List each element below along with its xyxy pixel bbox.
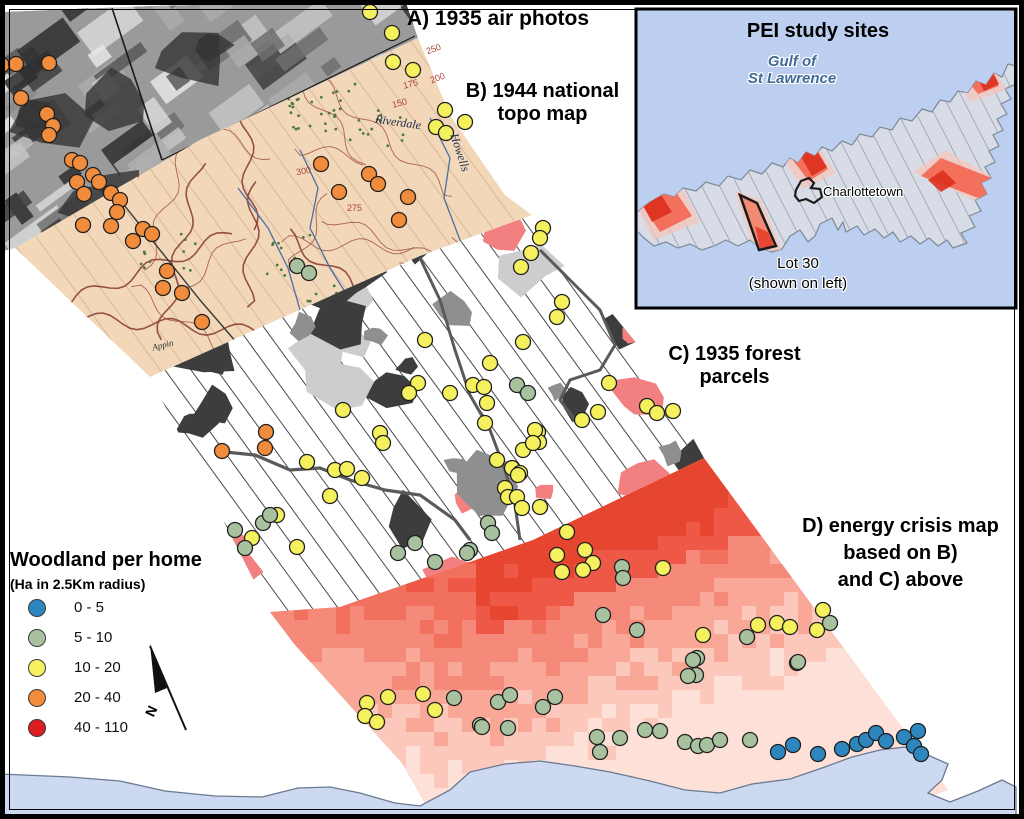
label-energy-line1: D) energy crisis map (778, 513, 1023, 540)
map-dot-5-10 (428, 555, 443, 570)
map-dot-5-10 (681, 669, 696, 684)
map-dot-5-10 (503, 688, 518, 703)
map-dot-20-40 (73, 156, 88, 171)
label-energy-line2: based on B) (778, 540, 1023, 567)
map-dot-10-20 (656, 561, 671, 576)
map-dot-10-20 (336, 403, 351, 418)
map-dot-10-20 (385, 26, 400, 41)
map-dot-20-40 (401, 190, 416, 205)
map-dot-10-20 (526, 436, 541, 451)
legend-item: 20 - 40 (10, 683, 202, 712)
map-dot-0-5 (771, 745, 786, 760)
legend-item-label: 20 - 40 (74, 689, 121, 706)
map-dot-5-10 (596, 608, 611, 623)
map-dot-10-20 (477, 380, 492, 395)
map-dot-20-40 (92, 175, 107, 190)
map-dot-10-20 (560, 525, 575, 540)
map-dot-5-10 (638, 723, 653, 738)
map-dot-5-10 (613, 731, 628, 746)
map-dot-5-10 (630, 623, 645, 638)
legend-item: 40 - 110 (10, 713, 202, 742)
map-dot-5-10 (686, 653, 701, 668)
legend-title: Woodland per home (10, 549, 202, 572)
map-dot-10-20 (386, 55, 401, 70)
map-dot-10-20 (381, 690, 396, 705)
map-dot-10-20 (533, 231, 548, 246)
map-dot-10-20 (783, 620, 798, 635)
legend-item-label: 40 - 110 (74, 719, 128, 736)
map-dot-10-20 (480, 396, 495, 411)
map-dot-5-10 (616, 571, 631, 586)
map-dot-10-20 (300, 455, 315, 470)
legend-item: 0 - 5 (10, 593, 202, 622)
legend-rows: 0 - 55 - 1010 - 2020 - 4040 - 110 (10, 593, 202, 742)
gulf-line2: St Lawrence (732, 70, 852, 87)
map-dot-20-40 (195, 315, 210, 330)
map-dot-10-20 (402, 386, 417, 401)
map-dot-20-40 (371, 177, 386, 192)
map-dot-5-10 (593, 745, 608, 760)
legend-swatch-icon (28, 719, 46, 737)
legend-item: 5 - 10 (10, 623, 202, 652)
gulf-label: Gulf of St Lawrence (732, 53, 852, 88)
map-dot-10-20 (516, 335, 531, 350)
legend-subtitle: (Ha in 2.5Km radius) (10, 576, 202, 592)
legend-item-label: 10 - 20 (74, 659, 121, 676)
legend-item-label: 5 - 10 (74, 629, 112, 646)
legend-swatch-icon (28, 629, 46, 647)
label-forest-line2: parcels (652, 366, 817, 389)
map-dot-20-40 (175, 286, 190, 301)
map-dot-10-20 (490, 453, 505, 468)
charlottetown-label: Charlottetown (823, 185, 903, 200)
map-dot-5-10 (391, 546, 406, 561)
map-dot-10-20 (575, 413, 590, 428)
map-dot-5-10 (447, 691, 462, 706)
map-dot-10-20 (550, 548, 565, 563)
map-dot-5-10 (653, 724, 668, 739)
map-dot-20-40 (314, 157, 329, 172)
map-dot-5-10 (713, 733, 728, 748)
map-dot-10-20 (515, 501, 530, 516)
map-dot-10-20 (533, 500, 548, 515)
map-dot-20-40 (156, 281, 171, 296)
map-dot-20-40 (14, 91, 29, 106)
map-dot-10-20 (751, 618, 766, 633)
map-dot-5-10 (263, 508, 278, 523)
map-dot-10-20 (483, 356, 498, 371)
map-dot-10-20 (418, 333, 433, 348)
lot30-line1: Lot 30 (722, 254, 874, 274)
map-dot-20-40 (77, 187, 92, 202)
map-dot-10-20 (355, 471, 370, 486)
map-dot-10-20 (576, 563, 591, 578)
legend-swatch-icon (28, 599, 46, 617)
map-dot-5-10 (475, 720, 490, 735)
gulf-line1: Gulf of (732, 53, 852, 70)
map-dot-0-5 (879, 734, 894, 749)
map-dot-20-40 (259, 425, 274, 440)
map-dot-0-5 (914, 747, 929, 762)
label-energy-crisis: D) energy crisis map based on B) and C) … (778, 513, 1023, 594)
map-dot-20-40 (145, 227, 160, 242)
inset-title: PEI study sites (733, 20, 903, 43)
map-dot-5-10 (743, 733, 758, 748)
map-dot-5-10 (302, 266, 317, 281)
map-dot-20-40 (392, 213, 407, 228)
map-dot-10-20 (696, 628, 711, 643)
map-dot-0-5 (786, 738, 801, 753)
map-dot-10-20 (514, 260, 529, 275)
map-dot-5-10 (823, 616, 838, 631)
map-dot-20-40 (110, 205, 125, 220)
map-dot-10-20 (550, 310, 565, 325)
label-air-photos: A) 1935 air photos (407, 7, 589, 31)
map-dot-5-10 (791, 655, 806, 670)
map-dot-10-20 (290, 540, 305, 555)
label-topo-map: B) 1944 national topo map (450, 80, 635, 126)
map-dot-20-40 (76, 218, 91, 233)
map-dot-0-5 (811, 747, 826, 762)
map-dot-5-10 (740, 630, 755, 645)
map-dot-10-20 (323, 489, 338, 504)
map-dot-10-20 (406, 63, 421, 78)
map-dot-5-10 (485, 526, 500, 541)
map-dot-10-20 (555, 295, 570, 310)
map-dot-20-40 (9, 57, 24, 72)
map-dot-0-5 (835, 742, 850, 757)
map-dot-20-40 (258, 441, 273, 456)
contour-label: 275 (347, 203, 362, 213)
label-topo-line2: topo map (450, 103, 635, 126)
map-dot-10-20 (443, 386, 458, 401)
map-dot-5-10 (536, 700, 551, 715)
map-dot-10-20 (428, 703, 443, 718)
map-dot-10-20 (363, 5, 378, 20)
map-dot-10-20 (591, 405, 606, 420)
map-dot-20-40 (42, 56, 57, 71)
label-forest-parcels: C) 1935 forest parcels (652, 343, 817, 389)
legend-swatch-icon (28, 659, 46, 677)
map-dot-20-40 (42, 128, 57, 143)
lot30-line2: (shown on left) (722, 274, 874, 294)
map-dot-10-20 (602, 376, 617, 391)
map-dot-5-10 (228, 523, 243, 538)
map-dot-10-20 (416, 687, 431, 702)
map-dot-0-5 (911, 724, 926, 739)
legend-item: 10 - 20 (10, 653, 202, 682)
map-dot-5-10 (460, 546, 475, 561)
map-dot-10-20 (578, 543, 593, 558)
map-dot-10-20 (376, 436, 391, 451)
map-dot-5-10 (408, 536, 423, 551)
map-dot-5-10 (548, 690, 563, 705)
map-dot-10-20 (650, 406, 665, 421)
map-dot-10-20 (511, 468, 526, 483)
map-dot-10-20 (555, 565, 570, 580)
map-dot-10-20 (340, 462, 355, 477)
map-dot-5-10 (501, 721, 516, 736)
map-dot-20-40 (160, 264, 175, 279)
legend-swatch-icon (28, 689, 46, 707)
map-dot-5-10 (238, 541, 253, 556)
map-dot-5-10 (590, 730, 605, 745)
label-energy-line3: and C) above (778, 567, 1023, 594)
label-topo-line1: B) 1944 national (450, 80, 635, 103)
legend-item-label: 0 - 5 (74, 599, 104, 616)
legend: Woodland per home (Ha in 2.5Km radius) 0… (10, 549, 202, 742)
map-dot-10-20 (524, 246, 539, 261)
map-dot-20-40 (126, 234, 141, 249)
map-figure: A) 1935 air photos B) 1944 national topo… (0, 0, 1024, 819)
map-dot-5-10 (521, 386, 536, 401)
map-dot-20-40 (104, 219, 119, 234)
map-dot-10-20 (370, 715, 385, 730)
map-dot-20-40 (332, 185, 347, 200)
map-dot-10-20 (666, 404, 681, 419)
lot30-label: Lot 30 (shown on left) (722, 254, 874, 294)
map-dot-10-20 (478, 416, 493, 431)
map-dot-20-40 (215, 444, 230, 459)
label-forest-line1: C) 1935 forest (652, 343, 817, 366)
